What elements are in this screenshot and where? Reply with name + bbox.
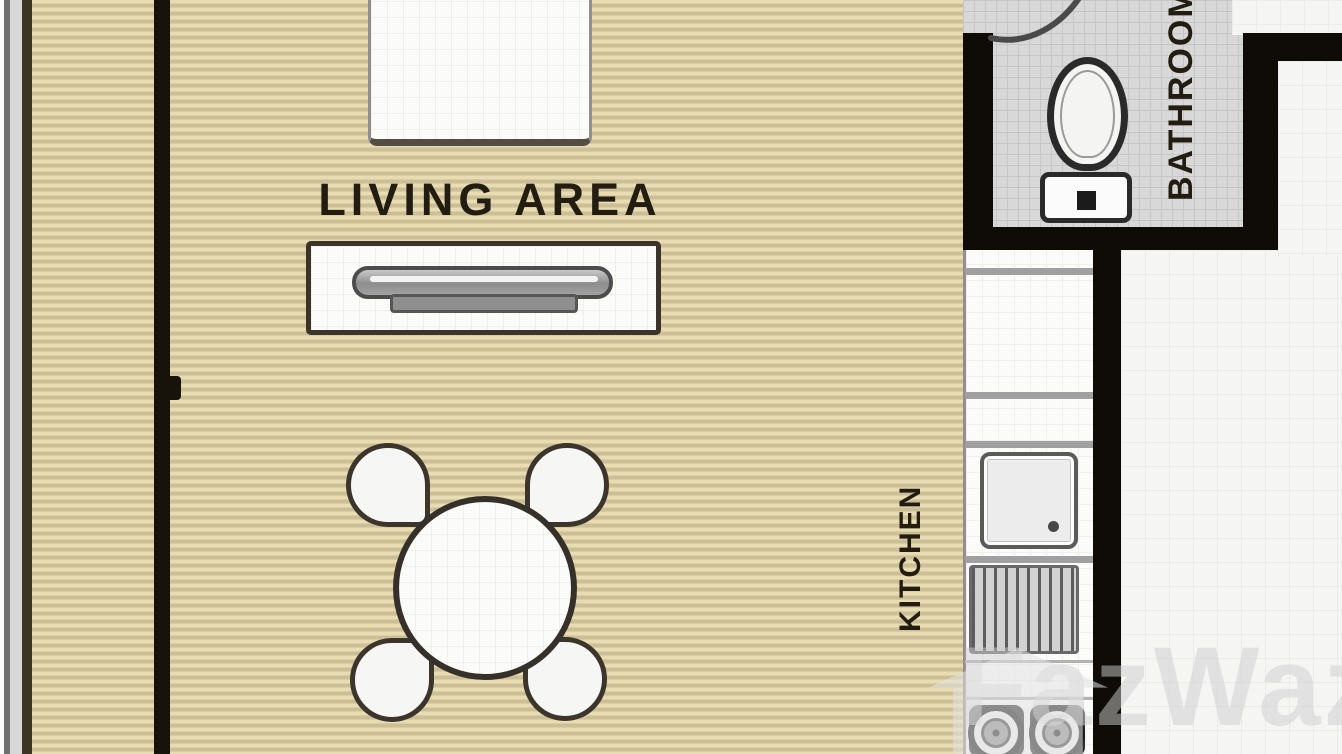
balcony-gap: [10, 0, 22, 754]
counter-divider: [965, 441, 1093, 448]
dining-table-icon: [393, 496, 577, 680]
bathroom-right-wall: [1243, 33, 1278, 250]
tv-stand-icon: [390, 294, 578, 313]
hallway-floor: [1232, 0, 1342, 35]
sofa-icon: [368, 0, 592, 146]
tv-screen-highlight: [370, 276, 598, 282]
bathroom-label: BATHROOM: [1162, 0, 1218, 218]
sink-icon: [980, 452, 1078, 549]
balcony-border: [22, 0, 32, 754]
floor-plan: LIVING AREA KITCHEN: [0, 0, 1342, 754]
counter-divider: [965, 268, 1093, 275]
living-area-label: LIVING AREA: [290, 174, 690, 226]
kitchen-label: KITCHEN: [894, 468, 940, 648]
toilet-icon: [1047, 57, 1128, 171]
top-right-wall: [1243, 33, 1342, 61]
bathroom-left-wall: [963, 33, 993, 250]
toilet-flush-icon: [1077, 191, 1096, 210]
bedroom-floor-upper: [1278, 61, 1342, 256]
counter-divider: [965, 392, 1093, 399]
sink-drain-icon: [1048, 521, 1059, 532]
dining-chair-icon: [346, 443, 430, 527]
counter-divider: [965, 556, 1093, 563]
wall-door-stub: [157, 376, 181, 400]
